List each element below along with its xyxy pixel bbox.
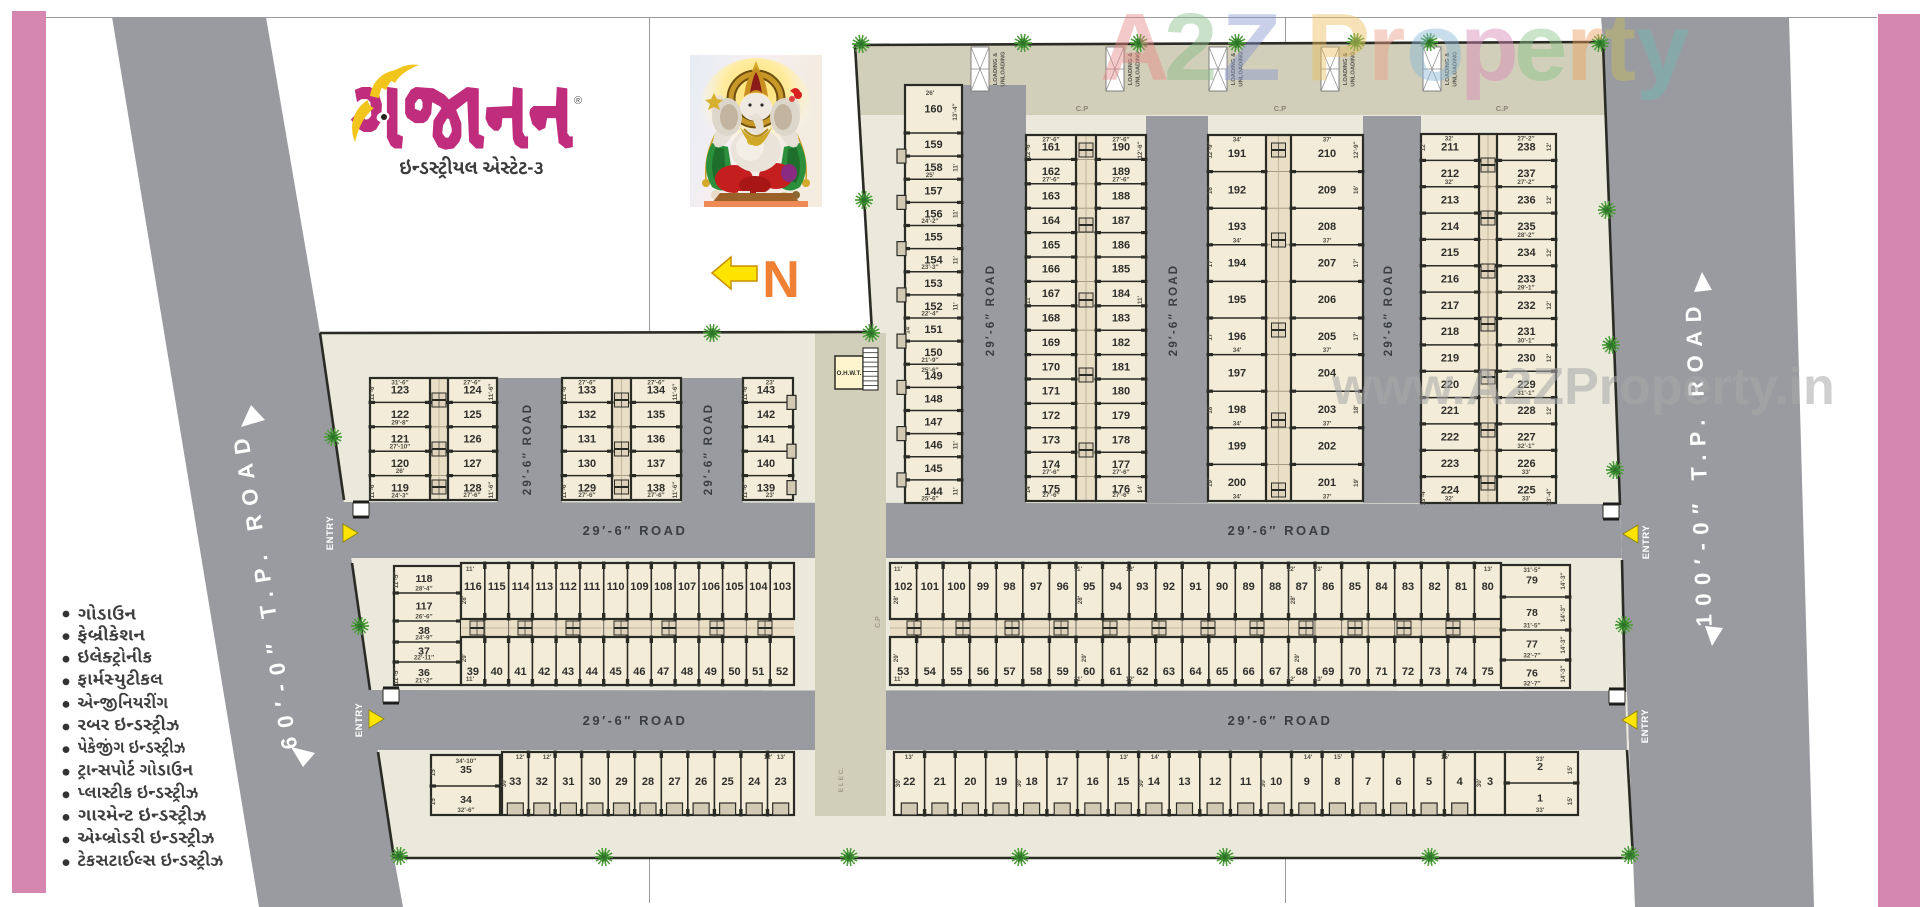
svg-text:148: 148 bbox=[924, 393, 942, 405]
svg-text:205: 205 bbox=[1318, 331, 1336, 343]
svg-text:32′: 32′ bbox=[1445, 179, 1454, 186]
svg-text:27′-10″: 27′-10″ bbox=[390, 444, 411, 451]
svg-text:97: 97 bbox=[1030, 581, 1042, 593]
svg-text:11′-6″: 11′-6″ bbox=[672, 384, 679, 401]
svg-text:17′: 17′ bbox=[1353, 258, 1360, 267]
svg-text:111: 111 bbox=[583, 581, 600, 593]
svg-text:N: N bbox=[762, 251, 800, 309]
svg-text:82: 82 bbox=[1428, 581, 1440, 593]
svg-text:214: 214 bbox=[1441, 221, 1460, 233]
svg-text:77: 77 bbox=[1526, 639, 1538, 651]
svg-text:12′: 12′ bbox=[1546, 248, 1553, 257]
svg-text:23′: 23′ bbox=[766, 492, 775, 499]
svg-text:227: 227 bbox=[1517, 432, 1535, 444]
svg-text:168: 168 bbox=[1042, 313, 1060, 325]
svg-text:14′: 14′ bbox=[1304, 754, 1313, 761]
svg-text:17: 17 bbox=[1056, 776, 1068, 788]
svg-text:®: ® bbox=[574, 95, 582, 107]
svg-text:118: 118 bbox=[416, 573, 433, 585]
svg-text:63: 63 bbox=[1163, 666, 1175, 678]
svg-text:11′-5″: 11′-5″ bbox=[393, 668, 400, 685]
svg-text:103: 103 bbox=[773, 581, 791, 593]
svg-text:26: 26 bbox=[695, 776, 707, 788]
svg-text:11′: 11′ bbox=[952, 302, 959, 311]
svg-text:31′-5″: 31′-5″ bbox=[1523, 623, 1540, 630]
svg-text:28′-2″: 28′-2″ bbox=[1517, 232, 1534, 239]
svg-text:113: 113 bbox=[535, 581, 553, 593]
svg-text:223: 223 bbox=[1441, 458, 1459, 470]
svg-text:19′: 19′ bbox=[1353, 478, 1360, 487]
svg-text:190: 190 bbox=[1112, 142, 1130, 154]
svg-text:74: 74 bbox=[1455, 666, 1468, 678]
svg-text:68: 68 bbox=[1296, 666, 1308, 678]
svg-text:58: 58 bbox=[1030, 666, 1042, 678]
svg-text:169: 169 bbox=[1042, 337, 1060, 349]
svg-text:208: 208 bbox=[1318, 221, 1336, 233]
svg-text:222: 222 bbox=[1441, 432, 1459, 444]
svg-text:124: 124 bbox=[463, 385, 482, 397]
svg-text:4: 4 bbox=[1457, 776, 1464, 788]
svg-text:73: 73 bbox=[1428, 666, 1440, 678]
svg-text:216: 216 bbox=[1441, 274, 1459, 286]
svg-text:209: 209 bbox=[1318, 184, 1336, 196]
svg-text:157: 157 bbox=[924, 185, 942, 197]
svg-text:12′: 12′ bbox=[1126, 676, 1135, 683]
svg-text:29′-8″: 29′-8″ bbox=[391, 419, 408, 426]
svg-text:y: y bbox=[1636, 0, 1689, 101]
svg-text:r: r bbox=[1566, 0, 1603, 101]
svg-text:12′: 12′ bbox=[543, 754, 552, 761]
svg-text:109: 109 bbox=[630, 581, 648, 593]
svg-text:225: 225 bbox=[1517, 484, 1535, 496]
svg-text:75: 75 bbox=[1482, 666, 1494, 678]
svg-text:C.P: C.P bbox=[875, 616, 882, 628]
svg-text:22′-4″: 22′-4″ bbox=[921, 311, 938, 318]
svg-text:181: 181 bbox=[1112, 361, 1130, 373]
svg-text:15′: 15′ bbox=[1567, 765, 1574, 774]
svg-text:52: 52 bbox=[776, 666, 788, 678]
svg-text:112: 112 bbox=[559, 581, 577, 593]
svg-text:LOADING &: LOADING & bbox=[993, 53, 999, 86]
svg-text:11: 11 bbox=[1240, 776, 1252, 788]
svg-text:24′-3″: 24′-3″ bbox=[391, 493, 408, 500]
svg-text:71: 71 bbox=[1375, 666, 1387, 678]
svg-text:234: 234 bbox=[1517, 247, 1536, 259]
svg-text:ENTRY: ENTRY bbox=[1641, 525, 1652, 560]
svg-text:50: 50 bbox=[728, 666, 740, 678]
svg-text:30′: 30′ bbox=[1138, 778, 1145, 787]
svg-text:11′: 11′ bbox=[953, 163, 960, 172]
svg-text:207: 207 bbox=[1318, 258, 1336, 270]
svg-text:ENTRY: ENTRY bbox=[1640, 709, 1651, 744]
svg-text:27′-6″: 27′-6″ bbox=[1112, 137, 1129, 144]
svg-text:27: 27 bbox=[668, 776, 680, 788]
svg-text:100: 100 bbox=[947, 581, 965, 593]
svg-text:236: 236 bbox=[1517, 194, 1535, 206]
svg-text:25: 25 bbox=[721, 776, 733, 788]
svg-text:187: 187 bbox=[1112, 215, 1130, 227]
svg-text:33: 33 bbox=[509, 776, 521, 788]
svg-text:26′-6″: 26′-6″ bbox=[415, 614, 432, 621]
svg-text:11′-6″: 11′-6″ bbox=[561, 482, 568, 499]
svg-text:49: 49 bbox=[705, 666, 717, 678]
svg-text:184: 184 bbox=[1112, 288, 1131, 300]
svg-text:29′: 29′ bbox=[1081, 653, 1088, 662]
svg-text:171: 171 bbox=[1042, 386, 1060, 398]
svg-text:11′-6″: 11′-6″ bbox=[369, 482, 376, 499]
svg-text:27′-6″: 27′-6″ bbox=[647, 380, 664, 387]
svg-text:15: 15 bbox=[1117, 776, 1129, 788]
svg-text:27′-6″: 27′-6″ bbox=[1112, 469, 1129, 476]
svg-text:12′: 12′ bbox=[1287, 676, 1296, 683]
svg-text:30: 30 bbox=[589, 776, 601, 788]
svg-text:44: 44 bbox=[586, 666, 599, 678]
svg-text:22: 22 bbox=[903, 776, 915, 788]
svg-text:87: 87 bbox=[1296, 581, 1308, 593]
svg-text:54: 54 bbox=[924, 666, 937, 678]
svg-text:48: 48 bbox=[681, 666, 693, 678]
svg-text:20: 20 bbox=[964, 776, 976, 788]
svg-text:81: 81 bbox=[1455, 581, 1467, 593]
svg-text:132: 132 bbox=[578, 409, 596, 421]
svg-text:72: 72 bbox=[1402, 666, 1414, 678]
svg-text:108: 108 bbox=[654, 581, 672, 593]
svg-text:29′: 29′ bbox=[893, 653, 900, 662]
svg-text:83: 83 bbox=[1402, 581, 1414, 593]
svg-text:51: 51 bbox=[752, 666, 764, 678]
svg-text:130: 130 bbox=[578, 458, 596, 470]
svg-text:13′-4″: 13′-4″ bbox=[1420, 488, 1427, 505]
svg-text:17′: 17′ bbox=[1353, 332, 1360, 341]
svg-text:11′: 11′ bbox=[894, 676, 903, 683]
svg-text:14: 14 bbox=[1148, 776, 1161, 788]
svg-text:C.P: C.P bbox=[1496, 104, 1509, 113]
svg-text:123: 123 bbox=[391, 385, 409, 397]
svg-text:11′: 11′ bbox=[1137, 295, 1144, 304]
svg-text:13′-4″: 13′-4″ bbox=[952, 103, 959, 120]
svg-text:11′-6″: 11′-6″ bbox=[488, 384, 495, 401]
svg-text:18′: 18′ bbox=[1207, 405, 1214, 414]
svg-text:11′-6″: 11′-6″ bbox=[742, 384, 749, 401]
svg-text:135: 135 bbox=[647, 409, 665, 421]
svg-text:28′: 28′ bbox=[1290, 595, 1297, 604]
svg-text:ENTRY: ENTRY bbox=[354, 703, 365, 738]
svg-text:33′: 33′ bbox=[1522, 469, 1531, 476]
svg-text:11′: 11′ bbox=[466, 676, 475, 683]
svg-text:67: 67 bbox=[1269, 666, 1281, 678]
svg-text:224: 224 bbox=[1441, 484, 1460, 496]
svg-text:11′-6″: 11′-6″ bbox=[672, 482, 679, 499]
svg-text:27′-6″: 27′-6″ bbox=[1042, 492, 1059, 499]
svg-text:183: 183 bbox=[1112, 313, 1130, 325]
svg-text:29′-6″ ROAD: 29′-6″ ROAD bbox=[1228, 713, 1333, 728]
svg-text:185: 185 bbox=[1112, 264, 1130, 276]
svg-text:212: 212 bbox=[1441, 168, 1459, 180]
svg-text:31: 31 bbox=[562, 776, 574, 788]
svg-text:182: 182 bbox=[1112, 337, 1130, 349]
svg-text:29′-1″: 29′-1″ bbox=[1517, 285, 1534, 292]
svg-text:28′: 28′ bbox=[1077, 595, 1084, 604]
svg-text:12′: 12′ bbox=[1546, 142, 1553, 151]
svg-text:160: 160 bbox=[924, 104, 942, 116]
svg-text:79: 79 bbox=[1526, 575, 1538, 587]
svg-text:29′-6″ ROAD: 29′-6″ ROAD bbox=[583, 713, 688, 728]
svg-text:11′-6″: 11′-6″ bbox=[369, 384, 376, 401]
svg-text:29′-6″ ROAD: 29′-6″ ROAD bbox=[1228, 523, 1333, 538]
svg-text:76: 76 bbox=[1526, 668, 1538, 680]
svg-text:12′: 12′ bbox=[1126, 566, 1135, 573]
svg-text:178: 178 bbox=[1112, 435, 1130, 447]
svg-text:UNLOADING: UNLOADING bbox=[1001, 51, 1007, 87]
svg-text:55: 55 bbox=[950, 666, 962, 678]
svg-text:116: 116 bbox=[464, 581, 482, 593]
svg-text:11′: 11′ bbox=[952, 487, 959, 496]
svg-text:186: 186 bbox=[1112, 239, 1130, 251]
svg-text:11′: 11′ bbox=[1074, 566, 1083, 573]
svg-text:134: 134 bbox=[647, 385, 666, 397]
svg-text:25′: 25′ bbox=[926, 172, 935, 179]
svg-text:31′-5″: 31′-5″ bbox=[1523, 567, 1540, 574]
svg-text:29′-6″ ROAD: 29′-6″ ROAD bbox=[703, 403, 715, 496]
svg-text:62: 62 bbox=[1136, 666, 1148, 678]
svg-text:155: 155 bbox=[924, 232, 942, 244]
svg-text:136: 136 bbox=[647, 434, 665, 446]
svg-text:127: 127 bbox=[463, 458, 481, 470]
svg-text:14′-3″: 14′-3″ bbox=[1560, 636, 1567, 653]
svg-text:16′: 16′ bbox=[1207, 185, 1214, 194]
svg-text:22′-11″: 22′-11″ bbox=[414, 655, 434, 662]
svg-text:29′-6″ ROAD: 29′-6″ ROAD bbox=[1383, 264, 1395, 357]
svg-text:210: 210 bbox=[1318, 148, 1336, 160]
svg-text:98: 98 bbox=[1003, 581, 1015, 593]
svg-text:88: 88 bbox=[1269, 581, 1281, 593]
svg-text:195: 195 bbox=[1228, 294, 1246, 306]
svg-text:99: 99 bbox=[977, 581, 989, 593]
svg-text:159: 159 bbox=[924, 139, 942, 151]
svg-text:11′-6″: 11′-6″ bbox=[742, 482, 749, 499]
svg-text:166: 166 bbox=[1042, 264, 1060, 276]
svg-text:13′: 13′ bbox=[1314, 676, 1323, 683]
svg-text:14′-3″: 14′-3″ bbox=[1560, 572, 1567, 589]
svg-text:218: 218 bbox=[1441, 326, 1459, 338]
svg-text:78: 78 bbox=[1526, 607, 1538, 619]
svg-text:34′: 34′ bbox=[1233, 420, 1242, 427]
svg-text:153: 153 bbox=[924, 278, 942, 290]
svg-text:215: 215 bbox=[1441, 247, 1459, 259]
svg-text:180: 180 bbox=[1112, 386, 1130, 398]
svg-text:42: 42 bbox=[538, 666, 550, 678]
svg-text:147: 147 bbox=[924, 417, 942, 429]
svg-text:12′-9″: 12′-9″ bbox=[1353, 141, 1360, 158]
svg-text:21′-2″: 21′-2″ bbox=[415, 678, 432, 685]
svg-text:232: 232 bbox=[1517, 300, 1535, 312]
svg-text:34′: 34′ bbox=[1233, 494, 1242, 501]
svg-text:11′-6″: 11′-6″ bbox=[561, 384, 568, 401]
svg-text:45: 45 bbox=[609, 666, 621, 678]
svg-text:14′-3″: 14′-3″ bbox=[1560, 605, 1567, 622]
svg-text:30′: 30′ bbox=[1016, 778, 1023, 787]
svg-text:12′: 12′ bbox=[1546, 195, 1553, 204]
svg-text:211: 211 bbox=[1441, 142, 1459, 154]
svg-text:43: 43 bbox=[562, 666, 574, 678]
svg-text:29′: 29′ bbox=[1294, 653, 1301, 662]
svg-text:101: 101 bbox=[921, 581, 939, 593]
svg-text:126: 126 bbox=[463, 434, 481, 446]
svg-text:r: r bbox=[1368, 0, 1405, 101]
svg-text:25′-6″: 25′-6″ bbox=[921, 496, 938, 503]
svg-text:105: 105 bbox=[725, 581, 743, 593]
svg-text:t: t bbox=[1604, 0, 1636, 101]
svg-text:92: 92 bbox=[1163, 581, 1175, 593]
svg-text:70: 70 bbox=[1349, 666, 1361, 678]
svg-text:19: 19 bbox=[995, 776, 1007, 788]
svg-text:11′: 11′ bbox=[953, 441, 960, 450]
svg-text:163: 163 bbox=[1042, 191, 1060, 203]
svg-text:84: 84 bbox=[1375, 581, 1388, 593]
svg-text:213: 213 bbox=[1441, 194, 1459, 206]
svg-text:12: 12 bbox=[1209, 776, 1221, 788]
svg-text:31′-6″: 31′-6″ bbox=[391, 380, 408, 387]
svg-text:28: 28 bbox=[642, 776, 654, 788]
svg-text:29′-6″ ROAD: 29′-6″ ROAD bbox=[985, 264, 997, 357]
svg-text:13′: 13′ bbox=[905, 754, 914, 761]
svg-text:28′: 28′ bbox=[893, 595, 900, 604]
svg-text:91: 91 bbox=[1189, 581, 1201, 593]
svg-text:35: 35 bbox=[460, 764, 472, 776]
svg-text:30′: 30′ bbox=[1260, 778, 1267, 787]
svg-text:37′: 37′ bbox=[1323, 237, 1332, 244]
svg-text:5: 5 bbox=[1426, 776, 1432, 788]
svg-text:6: 6 bbox=[1396, 776, 1402, 788]
svg-text:C.P: C.P bbox=[1076, 104, 1089, 113]
svg-text:200: 200 bbox=[1228, 477, 1246, 489]
svg-text:15′: 15′ bbox=[1567, 796, 1574, 805]
svg-text:32′-7″: 32′-7″ bbox=[1523, 653, 1540, 660]
svg-text:28′-4″: 28′-4″ bbox=[415, 586, 432, 593]
svg-text:27′-6″: 27′-6″ bbox=[463, 492, 480, 499]
svg-text:46: 46 bbox=[633, 666, 645, 678]
svg-text:34′: 34′ bbox=[1233, 237, 1242, 244]
svg-text:133: 133 bbox=[578, 385, 596, 397]
svg-text:e: e bbox=[1514, 0, 1567, 101]
svg-text:86: 86 bbox=[1322, 581, 1334, 593]
svg-text:26′: 26′ bbox=[926, 90, 935, 97]
svg-text:27′-6″: 27′-6″ bbox=[578, 380, 595, 387]
svg-text:59: 59 bbox=[1057, 666, 1069, 678]
svg-text:93: 93 bbox=[1136, 581, 1148, 593]
svg-text:115: 115 bbox=[488, 581, 506, 593]
svg-text:14′: 14′ bbox=[1151, 754, 1160, 761]
svg-text:11′: 11′ bbox=[953, 256, 960, 265]
svg-text:167: 167 bbox=[1042, 288, 1060, 300]
svg-text:142: 142 bbox=[757, 409, 775, 421]
svg-text:15′: 15′ bbox=[1441, 754, 1450, 761]
svg-text:125: 125 bbox=[463, 409, 481, 421]
svg-text:14′: 14′ bbox=[1137, 484, 1144, 493]
svg-text:33′: 33′ bbox=[1536, 756, 1545, 763]
svg-text:13′: 13′ bbox=[1484, 566, 1493, 573]
svg-text:P: P bbox=[1306, 0, 1370, 101]
svg-text:231: 231 bbox=[1517, 326, 1535, 338]
svg-text:13′-4″: 13′-4″ bbox=[1546, 488, 1553, 505]
svg-text:89: 89 bbox=[1242, 581, 1254, 593]
svg-text:p: p bbox=[1460, 0, 1519, 101]
svg-text:30′-1″: 30′-1″ bbox=[1517, 337, 1534, 344]
svg-text:179: 179 bbox=[1112, 410, 1130, 422]
svg-text:12′: 12′ bbox=[764, 754, 773, 761]
svg-text:117: 117 bbox=[416, 601, 433, 613]
svg-text:11′-5″: 11′-5″ bbox=[393, 572, 400, 589]
svg-text:201: 201 bbox=[1318, 477, 1336, 489]
svg-text:33′: 33′ bbox=[1536, 807, 1545, 814]
svg-text:34′: 34′ bbox=[1233, 137, 1242, 144]
svg-text:24: 24 bbox=[748, 776, 761, 788]
svg-text:110: 110 bbox=[607, 581, 625, 593]
svg-text:238: 238 bbox=[1517, 142, 1535, 154]
svg-text:146: 146 bbox=[924, 440, 942, 452]
svg-text:69: 69 bbox=[1322, 666, 1334, 678]
svg-text:37′: 37′ bbox=[1323, 137, 1332, 144]
svg-text:C.P: C.P bbox=[1274, 104, 1287, 113]
svg-text:25′-6″: 25′-6″ bbox=[921, 367, 938, 374]
svg-text:131: 131 bbox=[578, 434, 596, 446]
svg-text:26′: 26′ bbox=[396, 468, 405, 475]
svg-text:32′: 32′ bbox=[1445, 136, 1454, 143]
svg-text:47: 47 bbox=[657, 666, 669, 678]
svg-text:12′: 12′ bbox=[516, 754, 525, 761]
svg-text:32′-6″: 32′-6″ bbox=[457, 807, 474, 814]
svg-text:13′: 13′ bbox=[777, 754, 786, 761]
svg-text:14′: 14′ bbox=[1025, 484, 1032, 493]
svg-text:15′: 15′ bbox=[1334, 754, 1343, 761]
svg-text:23′: 23′ bbox=[766, 380, 775, 387]
svg-text:27′-6″: 27′-6″ bbox=[1112, 492, 1129, 499]
svg-text:143: 143 bbox=[757, 385, 775, 397]
svg-text:27′-6″: 27′-6″ bbox=[647, 492, 664, 499]
svg-text:32′-1″: 32′-1″ bbox=[1517, 443, 1534, 450]
svg-text:18: 18 bbox=[1025, 776, 1037, 788]
svg-text:217: 217 bbox=[1441, 300, 1459, 312]
svg-text:17′: 17′ bbox=[1207, 332, 1214, 341]
svg-text:21: 21 bbox=[934, 776, 946, 788]
svg-text:27′-2″: 27′-2″ bbox=[1517, 136, 1534, 143]
svg-text:19′: 19′ bbox=[1207, 478, 1214, 487]
svg-text:57: 57 bbox=[1003, 666, 1015, 678]
svg-text:188: 188 bbox=[1112, 191, 1130, 203]
svg-text:173: 173 bbox=[1042, 435, 1060, 447]
svg-text:96: 96 bbox=[1057, 581, 1069, 593]
svg-text:32′: 32′ bbox=[1445, 496, 1454, 503]
svg-text:32′-7″: 32′-7″ bbox=[1523, 681, 1540, 688]
svg-text:14′: 14′ bbox=[905, 325, 912, 334]
svg-text:198: 198 bbox=[1228, 404, 1246, 416]
svg-text:151: 151 bbox=[924, 324, 942, 336]
svg-text:33′: 33′ bbox=[1522, 496, 1531, 503]
svg-text:11′: 11′ bbox=[1074, 676, 1083, 683]
svg-text:11′-6″: 11′-6″ bbox=[488, 482, 495, 499]
svg-text:34′: 34′ bbox=[1233, 347, 1242, 354]
svg-text:37′: 37′ bbox=[1323, 494, 1332, 501]
svg-text:102: 102 bbox=[894, 581, 912, 593]
svg-text:37′: 37′ bbox=[1323, 420, 1332, 427]
svg-text:64: 64 bbox=[1189, 666, 1202, 678]
svg-text:41: 41 bbox=[514, 666, 526, 678]
svg-text:23′-3″: 23′-3″ bbox=[921, 264, 938, 271]
svg-text:95: 95 bbox=[1083, 581, 1095, 593]
svg-text:12′-6″: 12′-6″ bbox=[1025, 141, 1032, 158]
svg-text:161: 161 bbox=[1042, 142, 1060, 154]
svg-text:27′-2″: 27′-2″ bbox=[1517, 179, 1534, 186]
